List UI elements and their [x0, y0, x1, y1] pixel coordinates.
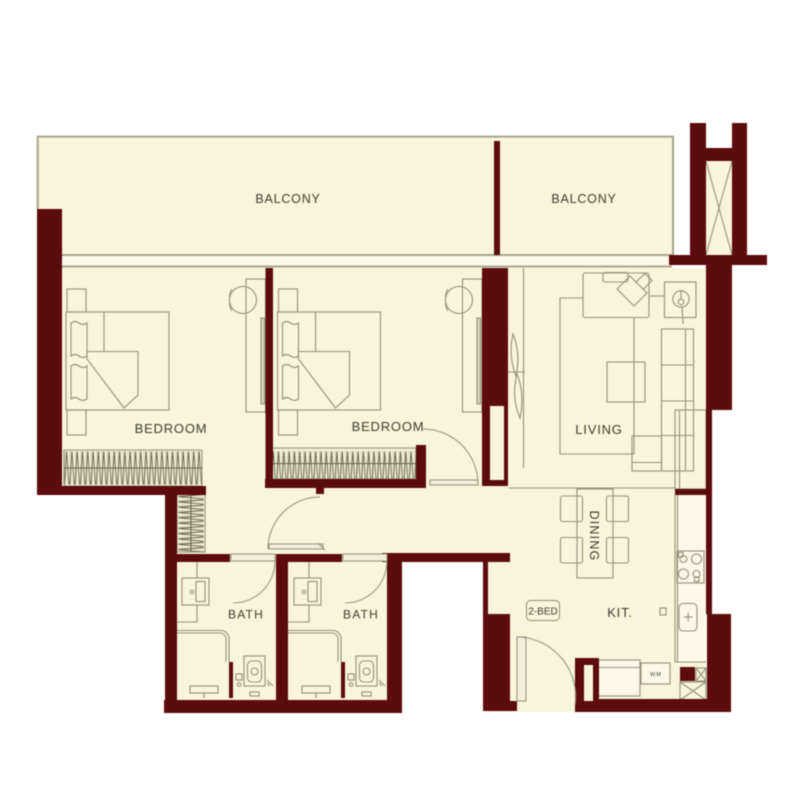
svg-text:BEDROOM: BEDROOM [352, 419, 425, 434]
svg-text:BEDROOM: BEDROOM [135, 421, 208, 436]
svg-text:BALCONY: BALCONY [255, 192, 320, 206]
svg-text:BATH: BATH [228, 608, 264, 622]
svg-text:2-BED: 2-BED [528, 607, 557, 618]
svg-text:BATH: BATH [343, 608, 379, 622]
svg-text:LIVING: LIVING [575, 422, 622, 437]
svg-text:KIT.: KIT. [607, 605, 633, 620]
svg-text:BALCONY: BALCONY [551, 192, 616, 206]
svg-text:DINING: DINING [587, 511, 601, 562]
svg-text:W.M: W.M [650, 672, 661, 678]
